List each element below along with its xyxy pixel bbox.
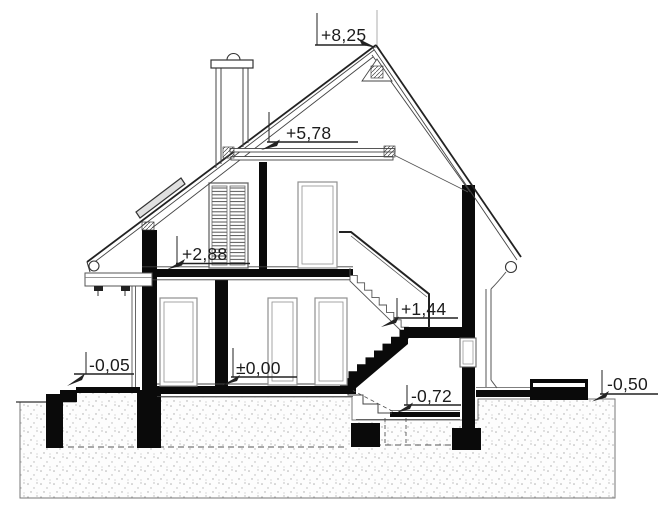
gutter-right (506, 262, 517, 273)
porch-post (132, 286, 136, 387)
chimney-cowl (227, 54, 240, 61)
ground-soil-hatch (20, 392, 615, 498)
left-exterior-wall (137, 222, 161, 448)
wall-plate-connector (142, 222, 154, 230)
central-foundation-footing (351, 423, 380, 447)
elevation-marker-ridge: +8,25 (315, 13, 377, 48)
elevation-marker-sunken-floor: -0,72 (396, 385, 461, 413)
elevation-marker-terrace-ground: -0,50 (592, 370, 658, 402)
downspout (486, 289, 497, 388)
ground-floor-door-left (160, 298, 197, 386)
elevation-marker-entrance-platform: -0,05 (67, 352, 134, 386)
architectural-section-sheet: +8,25 +5,78 +2,88 +1,44 ±0,00 (0, 0, 672, 520)
attic-floor-slab (142, 267, 353, 280)
stair-lower-flight (340, 330, 408, 394)
attic-partition-wall (259, 162, 267, 269)
chimney-cap (211, 60, 253, 68)
elevation-label-entrance-platform: -0,05 (89, 355, 130, 375)
elevation-label-ridge: +8,25 (321, 25, 366, 45)
stair-upper-flight (350, 268, 408, 338)
elevation-label-sunken-floor: -0,72 (411, 386, 452, 406)
attic-door (298, 182, 337, 268)
elevation-label-stair-landing: +1,44 (401, 299, 446, 319)
elevation-label-ground-floor: ±0,00 (236, 358, 281, 378)
terrace-step-block (530, 379, 588, 400)
elevation-label-terrace-ground: -0,50 (607, 374, 648, 394)
house-section-drawing: +8,25 +5,78 +2,88 +1,44 ±0,00 (0, 0, 672, 520)
downspout-elbow (491, 272, 506, 289)
ground-floor-door-right (315, 298, 347, 385)
elevation-label-attic-floor: +2,88 (182, 244, 227, 264)
marker-arrow (67, 374, 85, 387)
interior-wall-ground-floor (215, 280, 228, 386)
stair-landing-slab (404, 327, 462, 338)
elevation-marker-collar-beam: +5,78 (261, 112, 358, 150)
elevation-label-collar-beam: +5,78 (286, 123, 331, 143)
stairwell-window (460, 338, 476, 367)
gutter-left (89, 261, 99, 271)
right-foundation-footing (452, 428, 481, 450)
